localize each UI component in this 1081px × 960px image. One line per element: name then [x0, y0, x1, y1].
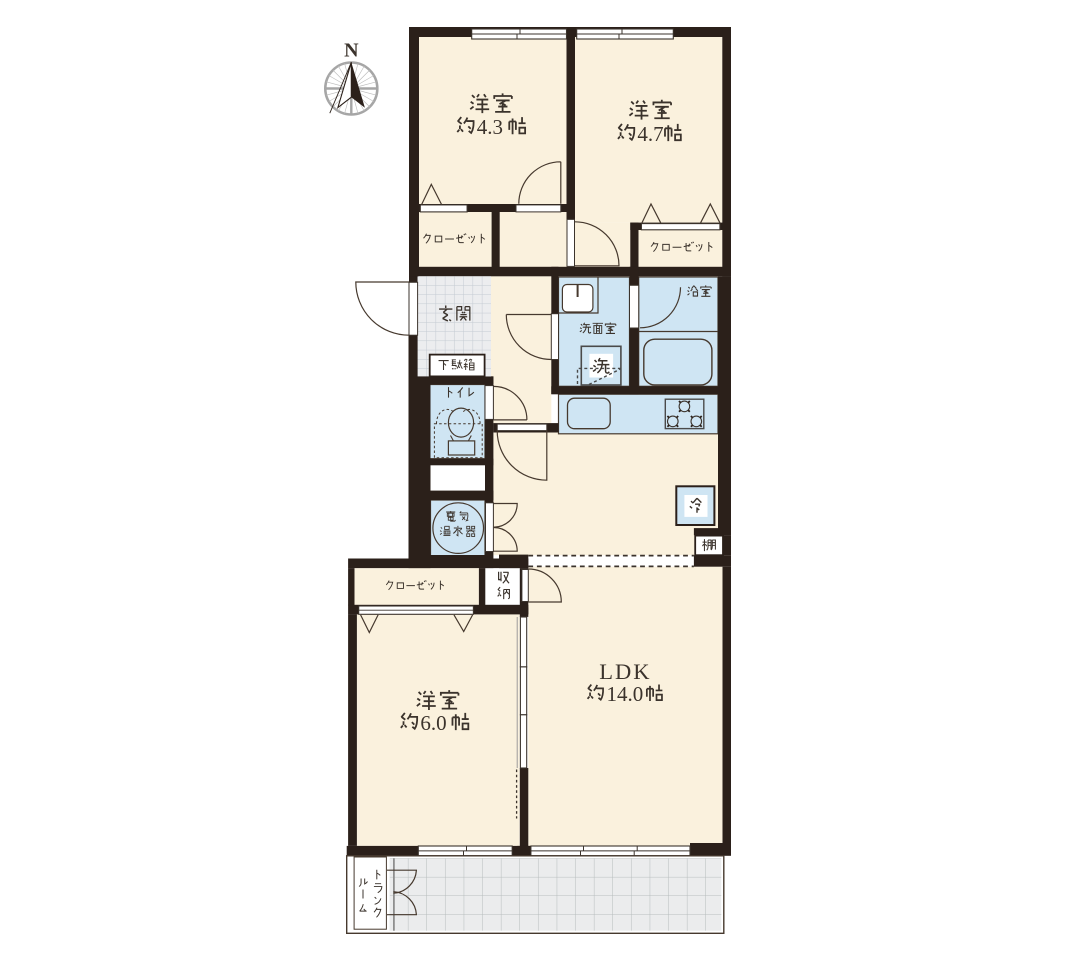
svg-text:LDK: LDK — [599, 659, 651, 684]
svg-text:4.7: 4.7 — [637, 122, 663, 146]
svg-text:14.0: 14.0 — [607, 682, 644, 706]
svg-text:6.0: 6.0 — [420, 711, 446, 735]
svg-text:N: N — [344, 40, 359, 62]
svg-text:4.3: 4.3 — [477, 115, 503, 139]
